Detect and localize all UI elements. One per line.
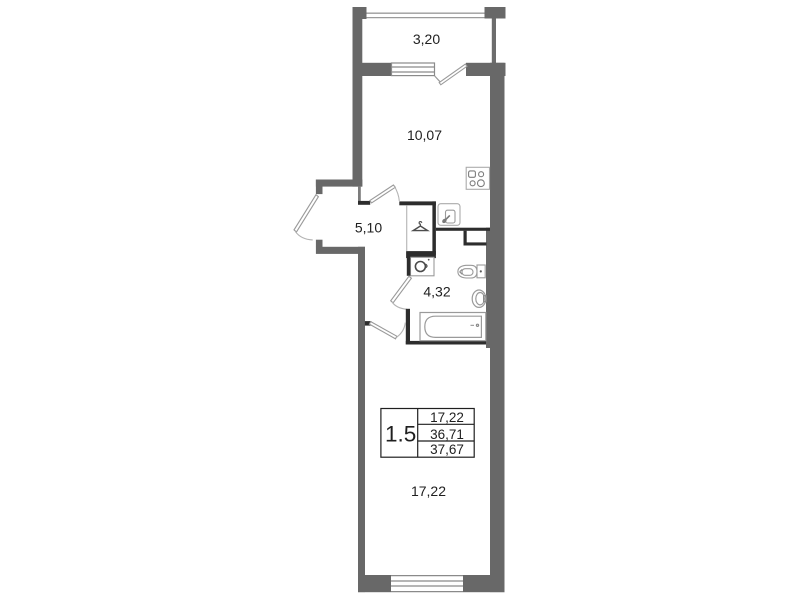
svg-text:3,20: 3,20 bbox=[413, 31, 440, 47]
svg-text:5,10: 5,10 bbox=[355, 220, 382, 236]
svg-text:37,67: 37,67 bbox=[430, 442, 464, 457]
svg-text:1.5: 1.5 bbox=[385, 421, 416, 446]
svg-text:36,71: 36,71 bbox=[430, 427, 464, 442]
svg-text:4,32: 4,32 bbox=[423, 284, 450, 300]
svg-text:17,22: 17,22 bbox=[411, 483, 446, 499]
svg-text:10,07: 10,07 bbox=[407, 127, 442, 143]
svg-text:17,22: 17,22 bbox=[430, 410, 464, 425]
